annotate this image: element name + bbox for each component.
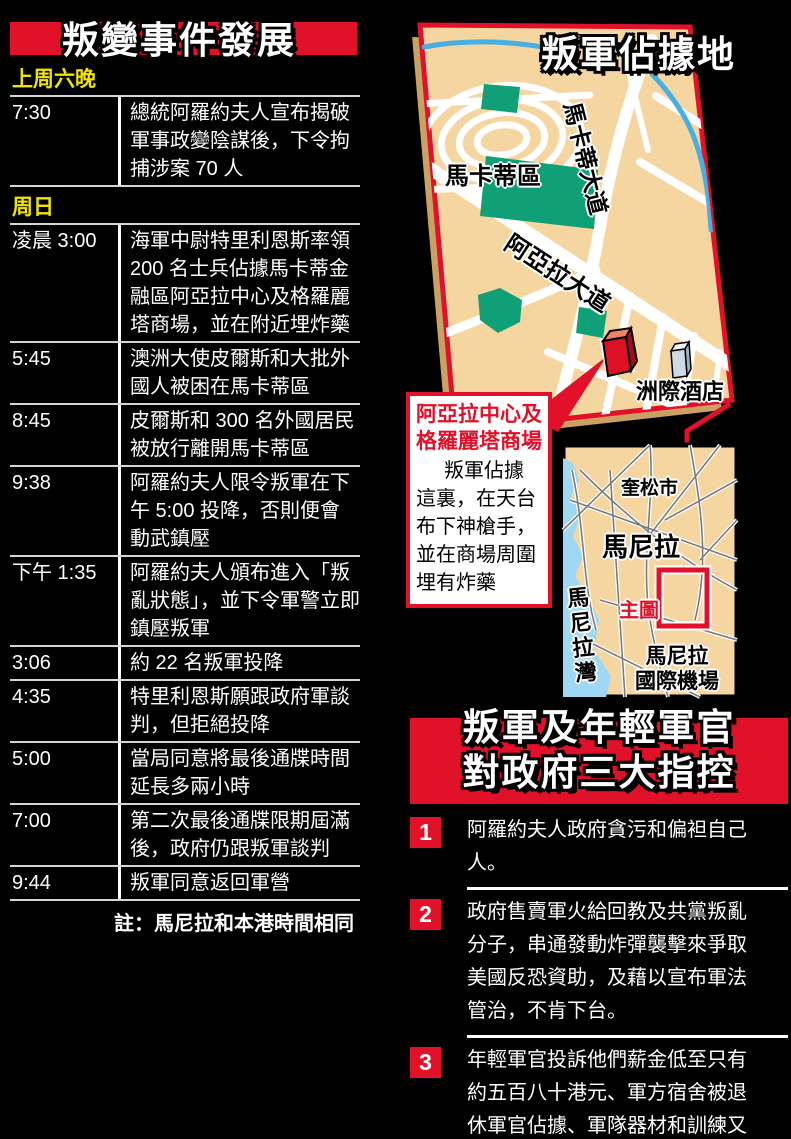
- accusation-item: 2 政府售賣軍火給回教及共黨叛亂分子，串通發動炸彈襲擊來爭取美國反恐資助，及藉以…: [410, 895, 788, 1035]
- timeline-event-text: 約 22 名叛軍投降: [118, 647, 360, 679]
- map-panel: 叛軍佔據地 馬卡蒂區 馬卡蒂大道 阿亞拉大道 洲際酒店 奎松市 馬尼拉 馬尼拉灣…: [400, 0, 791, 712]
- occupied-building-marker: [603, 328, 637, 376]
- timeline-time: 5:45: [10, 343, 118, 403]
- hotel-label: 洲際酒店: [636, 374, 724, 406]
- map-callout: 阿亞拉中心及格羅麗塔商場 叛軍佔據這裏，在天台布下神槍手，並在商場周圍埋有炸藥: [406, 392, 552, 608]
- timeline-row: 3:06 約 22 名叛軍投降: [10, 647, 360, 681]
- timeline-event-text: 總統阿羅約夫人宣布揭破軍事政變陰謀後，下令拘捕涉案 70 人: [118, 97, 360, 185]
- callout-title: 阿亞拉中心及格羅麗塔商場: [416, 401, 542, 455]
- timeline-event-text: 特里利恩斯願跟政府軍談判，但拒絕投降: [118, 681, 360, 741]
- accusation-text: 阿羅約夫人政府貪污和偏袒自己人。: [467, 814, 761, 880]
- accusation-separator: [467, 1035, 788, 1038]
- timeline-event-text: 皮爾斯和 300 名外國居民被放行離開馬卡蒂區: [118, 405, 360, 465]
- timeline-event-text: 第二次最後通牒限期屆滿後，政府仍跟叛軍談判: [118, 805, 360, 865]
- airport-label: 馬尼拉 國際機場: [614, 644, 740, 694]
- infographic-page: 叛變事件發展 上周六晚 7:30 總統阿羅約夫人宣布揭破軍事政變陰謀後，下令拘捕…: [0, 0, 791, 1139]
- timeline-row: 7:00 第二次最後通牒限期屆滿後，政府仍跟叛軍談判: [10, 805, 360, 867]
- accusation-number-badge: 3: [410, 1047, 441, 1078]
- accusation-separator: [467, 887, 788, 890]
- accusations-title: 叛軍及年輕軍官 對政府三大指控: [410, 705, 788, 795]
- park: [481, 84, 520, 113]
- manila-label: 馬尼拉: [602, 527, 680, 564]
- accusation-text: 政府售賣軍火給回教及共黨叛亂分子，串通發動炸彈襲擊來爭取美國反恐資助，及藉以宣布…: [467, 896, 761, 1028]
- quezon-city-label: 奎松市: [621, 473, 678, 500]
- timeline-headline: 叛變事件發展: [10, 12, 360, 59]
- timeline-row: 5:45 澳洲大使皮爾斯和大批外國人被困在馬卡蒂區: [10, 343, 360, 405]
- timeline-event-text: 阿羅約夫人頒布進入「叛亂狀態」，並下令軍警立即鎮壓叛軍: [118, 557, 360, 645]
- timeline-row: 凌晨 3:00 海軍中尉特里利恩斯率領 200 名士兵佔據馬卡蒂金融區阿亞拉中心…: [10, 225, 360, 343]
- timeline-time: 5:00: [10, 743, 118, 803]
- timeline-time: 9:44: [10, 867, 118, 899]
- timeline-time: 下午 1:35: [10, 557, 118, 645]
- timeline-time: 凌晨 3:00: [10, 225, 118, 341]
- timeline-section-header: 上周六晚: [10, 59, 360, 97]
- accusation-number-badge: 1: [410, 817, 441, 848]
- timeline-row: 8:45 皮爾斯和 300 名外國居民被放行離開馬卡蒂區: [10, 405, 360, 467]
- main-map-indicator-label: 主圖: [619, 594, 659, 623]
- accusation-item: 3 年輕軍官投訴他們薪金低至只有約五百八十港元、軍方宿舍被退休軍官佔據、軍隊器材…: [410, 1043, 788, 1139]
- timeline-row: 下午 1:35 阿羅約夫人頒布進入「叛亂狀態」，並下令軍警立即鎮壓叛軍: [10, 557, 360, 647]
- timeline-time: 7:00: [10, 805, 118, 865]
- timeline-row: 4:35 特里利恩斯願跟政府軍談判，但拒絕投降: [10, 681, 360, 743]
- accusation-number-badge: 2: [410, 899, 441, 930]
- timeline-event-text: 阿羅約夫人限令叛軍在下午 5:00 投降，否則便會動武鎮壓: [118, 467, 360, 555]
- accusations-title-banner: 叛軍及年輕軍官 對政府三大指控: [410, 718, 788, 804]
- accusation-item: 1 阿羅約夫人政府貪污和偏袒自己人。: [410, 813, 788, 887]
- timeline-row: 5:00 當局同意將最後通牒時間延長多兩小時: [10, 743, 360, 805]
- callout-body: 叛軍佔據這裏，在天台布下神槍手，並在商場周圍埋有炸藥: [416, 457, 542, 597]
- map-title: 叛軍佔據地: [541, 24, 736, 78]
- timeline-row: 9:38 阿羅約夫人限令叛軍在下午 5:00 投降，否則便會動武鎮壓: [10, 467, 360, 557]
- timeline-time: 8:45: [10, 405, 118, 465]
- timeline-row: 7:30 總統阿羅約夫人宣布揭破軍事政變陰謀後，下令拘捕涉案 70 人: [10, 97, 360, 187]
- timeline-note: 註：馬尼拉和本港時間相同: [10, 901, 360, 936]
- timeline-time: 9:38: [10, 467, 118, 555]
- timeline-time: 3:06: [10, 647, 118, 679]
- accusations-list: 1 阿羅約夫人政府貪污和偏袒自己人。 2 政府售賣軍火給回教及共黨叛亂分子，串通…: [410, 813, 788, 1139]
- timeline-table: 上周六晚 7:30 總統阿羅約夫人宣布揭破軍事政變陰謀後，下令拘捕涉案 70 人…: [10, 59, 360, 901]
- timeline-panel: 叛變事件發展 上周六晚 7:30 總統阿羅約夫人宣布揭破軍事政變陰謀後，下令拘捕…: [10, 12, 360, 936]
- timeline-event-text: 叛軍同意返回軍營: [118, 867, 360, 899]
- timeline-time: 4:35: [10, 681, 118, 741]
- timeline-title: 叛變事件發展: [62, 10, 296, 64]
- timeline-event-text: 澳洲大使皮爾斯和大批外國人被困在馬卡蒂區: [118, 343, 360, 403]
- hotel-marker: [671, 342, 691, 378]
- accusation-text: 年輕軍官投訴他們薪金低至只有約五百八十港元、軍方宿舍被退休軍官佔據、軍隊器材和訓…: [467, 1044, 761, 1139]
- timeline-row: 9:44 叛軍同意返回軍營: [10, 867, 360, 901]
- timeline-time: 7:30: [10, 97, 118, 185]
- timeline-event-text: 當局同意將最後通牒時間延長多兩小時: [118, 743, 360, 803]
- timeline-event-text: 海軍中尉特里利恩斯率領 200 名士兵佔據馬卡蒂金融區阿亞拉中心及格羅麗塔商場，…: [118, 225, 360, 341]
- timeline-section-header: 周日: [10, 187, 360, 225]
- makati-district-label: 馬卡蒂區: [445, 156, 541, 191]
- accusations-panel: 叛軍及年輕軍官 對政府三大指控 1 阿羅約夫人政府貪污和偏袒自己人。 2 政府售…: [410, 700, 788, 1139]
